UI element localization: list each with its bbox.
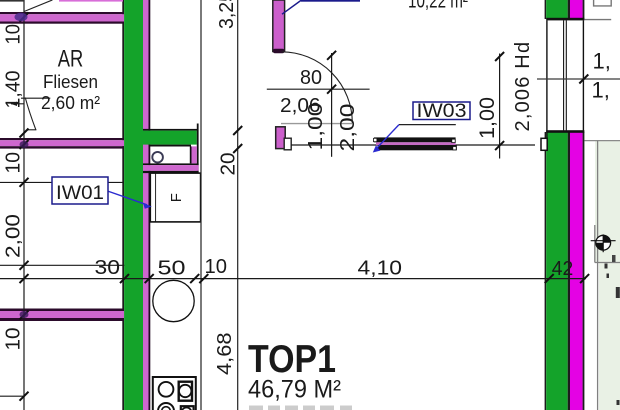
svg-text:4,10: 4,10 [358,256,403,279]
svg-text:10: 10 [205,255,228,278]
svg-text:80: 80 [300,66,322,89]
svg-text:4,68: 4,68 [213,333,236,376]
svg-text:42: 42 [552,257,574,280]
svg-text:IW03: IW03 [417,100,467,122]
svg-text:10,22 m²: 10,22 m² [408,0,468,13]
svg-text:20: 20 [217,153,240,176]
svg-text:10: 10 [3,152,25,174]
svg-text:1,00: 1,00 [476,97,499,139]
svg-text:2,00: 2,00 [337,104,359,152]
svg-text:2,006 Hd: 2,006 Hd [512,41,534,132]
svg-text:IW01: IW01 [56,182,104,204]
svg-text:1,40: 1,40 [3,71,25,109]
svg-text:46,79 M²: 46,79 M² [248,375,341,403]
svg-text:1,: 1, [593,49,611,74]
svg-text:2,00: 2,00 [3,214,25,258]
svg-text:10: 10 [3,328,25,351]
svg-text:F: F [168,193,185,202]
svg-text:3,25: 3,25 [216,0,238,29]
svg-text:30: 30 [95,256,121,279]
svg-text:1,00: 1,00 [305,103,327,151]
svg-text:2,60 m²: 2,60 m² [41,92,100,113]
svg-text:AR: AR [58,46,84,73]
svg-text:10: 10 [3,24,25,45]
svg-text:Fliesen: Fliesen [43,72,98,92]
svg-text:50: 50 [158,257,186,280]
svg-text:1,: 1, [592,78,610,103]
